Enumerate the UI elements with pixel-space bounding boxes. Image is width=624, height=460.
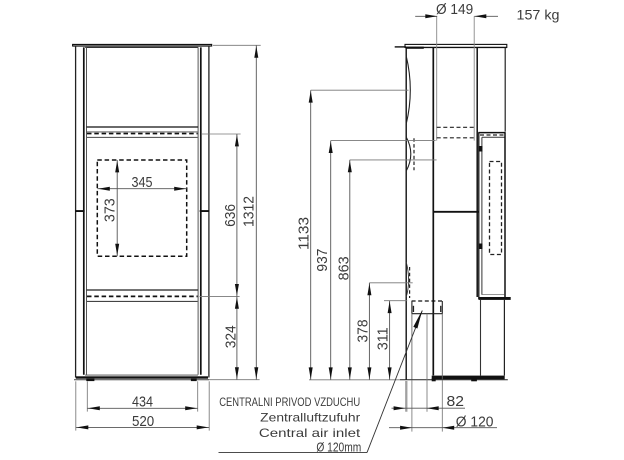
svg-text:Ø 120mm: Ø 120mm [316, 441, 361, 455]
svg-text:Ø 120: Ø 120 [456, 414, 494, 430]
svg-text:636: 636 [223, 204, 239, 227]
svg-text:345: 345 [132, 175, 153, 191]
svg-text:434: 434 [132, 395, 153, 411]
svg-text:1133: 1133 [297, 217, 313, 250]
svg-text:520: 520 [132, 414, 154, 430]
svg-text:863: 863 [337, 256, 353, 280]
svg-text:Ø 149: Ø 149 [436, 2, 473, 18]
svg-text:311: 311 [375, 327, 391, 350]
svg-text:937: 937 [315, 249, 331, 272]
svg-text:157 kg: 157 kg [517, 6, 560, 22]
svg-text:82: 82 [447, 394, 465, 410]
svg-text:Zentralluftzufuhr: Zentralluftzufuhr [260, 412, 360, 425]
svg-text:1312: 1312 [241, 196, 257, 227]
svg-text:324: 324 [223, 325, 239, 348]
svg-text:CENTRALNI PRIVOD VZDUCHU: CENTRALNI PRIVOD VZDUCHU [219, 396, 360, 409]
svg-text:373: 373 [102, 198, 118, 222]
svg-text:378: 378 [356, 320, 372, 343]
svg-text:Central air inlet: Central air inlet [259, 427, 361, 440]
